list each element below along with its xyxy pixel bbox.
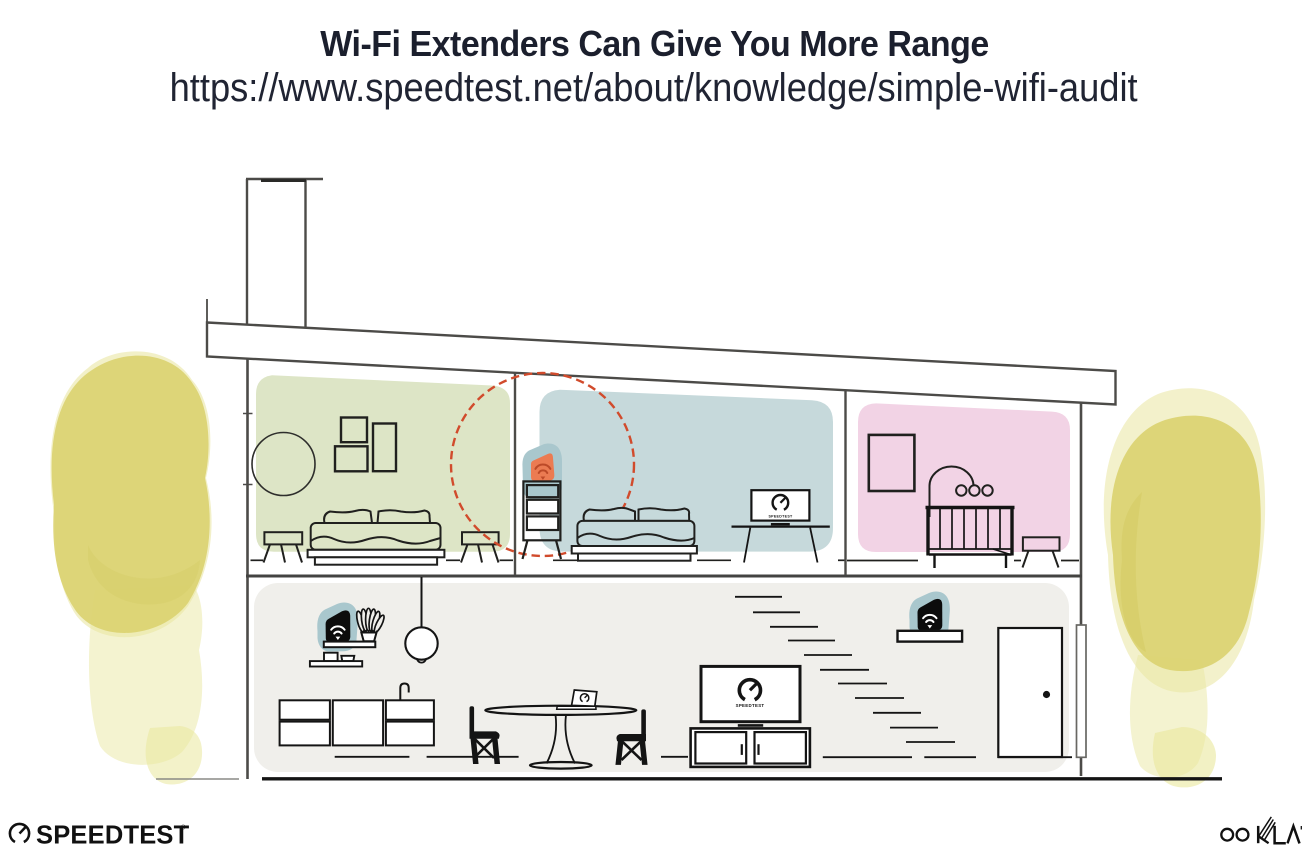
svg-text:®: ® bbox=[181, 825, 186, 832]
svg-text:SPEEDTEST: SPEEDTEST bbox=[36, 822, 190, 850]
svg-text:SPEEDTEST: SPEEDTEST bbox=[736, 703, 765, 708]
svg-text:SPEEDTEST: SPEEDTEST bbox=[768, 514, 793, 518]
